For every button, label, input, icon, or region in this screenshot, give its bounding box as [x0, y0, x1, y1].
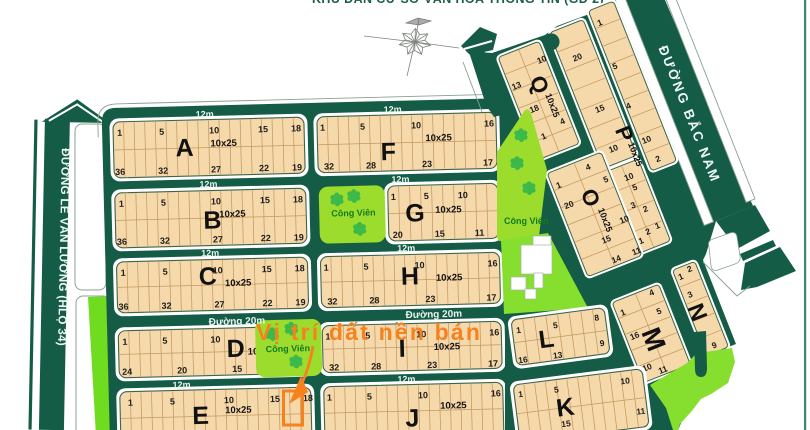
svg-text:15: 15: [232, 364, 242, 374]
svg-text:10: 10: [213, 265, 223, 275]
svg-text:G: G: [405, 199, 425, 227]
svg-text:10x25: 10x25: [219, 209, 246, 221]
svg-text:Công Viên: Công Viên: [331, 207, 376, 218]
svg-text:5: 5: [159, 127, 164, 137]
svg-text:36: 36: [118, 302, 128, 312]
svg-text:32: 32: [158, 166, 168, 176]
svg-text:1: 1: [121, 268, 126, 278]
svg-text:10x25: 10x25: [210, 138, 237, 150]
svg-text:17: 17: [488, 358, 498, 368]
svg-text:15: 15: [258, 124, 268, 134]
svg-text:27: 27: [214, 299, 224, 309]
svg-text:12m: 12m: [172, 380, 190, 390]
svg-text:24: 24: [122, 367, 132, 377]
svg-text:5: 5: [162, 336, 167, 346]
svg-text:19: 19: [292, 162, 302, 172]
svg-text:16: 16: [491, 388, 501, 398]
svg-text:E: E: [192, 402, 209, 430]
svg-text:23: 23: [427, 360, 437, 370]
svg-text:F: F: [380, 138, 396, 166]
svg-text:5: 5: [424, 191, 429, 201]
svg-text:17: 17: [483, 157, 493, 167]
svg-text:10: 10: [224, 395, 234, 405]
svg-text:5: 5: [367, 392, 372, 402]
svg-text:12m: 12m: [201, 248, 219, 258]
svg-text:10: 10: [418, 390, 428, 400]
svg-text:10: 10: [210, 334, 220, 344]
svg-text:22: 22: [261, 233, 271, 243]
svg-text:23: 23: [422, 159, 432, 169]
svg-text:22: 22: [262, 298, 272, 308]
svg-text:12m: 12m: [397, 243, 415, 253]
svg-text:16: 16: [518, 354, 529, 365]
svg-text:15: 15: [262, 264, 272, 274]
svg-text:32: 32: [161, 301, 171, 311]
svg-text:22: 22: [259, 163, 269, 173]
svg-text:15: 15: [435, 229, 445, 239]
svg-text:10: 10: [458, 190, 468, 200]
svg-text:10x25: 10x25: [225, 278, 252, 290]
svg-text:16: 16: [484, 118, 494, 128]
svg-text:10x25: 10x25: [425, 132, 452, 144]
svg-text:1: 1: [122, 337, 127, 347]
svg-text:1: 1: [128, 398, 133, 408]
svg-text:10x25: 10x25: [225, 405, 252, 417]
svg-text:12m: 12m: [384, 104, 402, 114]
svg-text:15: 15: [561, 418, 572, 429]
svg-text:18: 18: [303, 393, 313, 403]
svg-text:12m: 12m: [397, 374, 415, 384]
svg-text:Công Viên: Công Viên: [504, 216, 548, 226]
svg-text:5: 5: [360, 122, 365, 132]
svg-text:12m: 12m: [391, 174, 409, 184]
svg-text:10: 10: [414, 260, 424, 270]
svg-text:32: 32: [327, 296, 337, 306]
svg-text:10: 10: [209, 125, 219, 135]
svg-text:1: 1: [117, 128, 122, 138]
svg-text:13: 13: [552, 350, 563, 361]
svg-text:10x25: 10x25: [436, 272, 463, 284]
svg-text:KHU DÂN CƯ SỞ VĂN HÓA THÔNG TI: KHU DÂN CƯ SỞ VĂN HÓA THÔNG TIN (GĐ 2): [312, 0, 604, 6]
svg-text:5: 5: [163, 267, 168, 277]
svg-text:18: 18: [294, 263, 304, 273]
svg-text:19: 19: [294, 232, 304, 242]
svg-text:A: A: [175, 134, 194, 162]
svg-text:20: 20: [393, 230, 403, 240]
svg-text:27: 27: [211, 164, 221, 174]
svg-text:18: 18: [291, 123, 301, 133]
svg-text:5: 5: [170, 397, 175, 407]
svg-text:5: 5: [161, 198, 166, 208]
svg-text:23: 23: [425, 294, 435, 304]
svg-text:36: 36: [117, 237, 127, 247]
svg-text:16: 16: [487, 258, 497, 268]
svg-text:12m: 12m: [199, 179, 217, 189]
svg-text:10: 10: [411, 120, 421, 130]
svg-text:10x25: 10x25: [435, 204, 462, 216]
svg-text:19: 19: [295, 297, 305, 307]
svg-text:11: 11: [475, 228, 485, 238]
svg-text:1: 1: [119, 199, 124, 209]
svg-text:10: 10: [211, 196, 221, 206]
svg-text:10x25: 10x25: [440, 400, 467, 412]
svg-text:28: 28: [369, 295, 379, 305]
svg-text:28: 28: [371, 361, 381, 371]
svg-text:15: 15: [260, 195, 270, 205]
svg-text:12m: 12m: [196, 109, 214, 119]
svg-text:Vị trí đất nền bán: Vị trí đất nền bán: [256, 319, 482, 345]
svg-text:32: 32: [329, 362, 339, 372]
svg-text:1: 1: [320, 123, 325, 133]
svg-text:28: 28: [366, 160, 376, 170]
svg-text:27: 27: [213, 234, 223, 244]
svg-text:36: 36: [115, 167, 125, 177]
svg-text:16: 16: [489, 327, 499, 337]
svg-text:J: J: [405, 404, 420, 430]
svg-text:5: 5: [363, 262, 368, 272]
svg-text:1: 1: [327, 393, 332, 403]
svg-text:D: D: [226, 335, 245, 363]
svg-text:11: 11: [636, 406, 646, 417]
svg-text:18: 18: [293, 194, 303, 204]
svg-text:1: 1: [323, 263, 328, 273]
svg-text:10: 10: [620, 375, 631, 386]
svg-text:32: 32: [160, 236, 170, 246]
svg-text:32: 32: [324, 161, 334, 171]
svg-text:1: 1: [391, 192, 396, 202]
svg-text:20: 20: [177, 365, 187, 375]
svg-text:17: 17: [486, 292, 496, 302]
svg-text:15: 15: [270, 394, 280, 404]
